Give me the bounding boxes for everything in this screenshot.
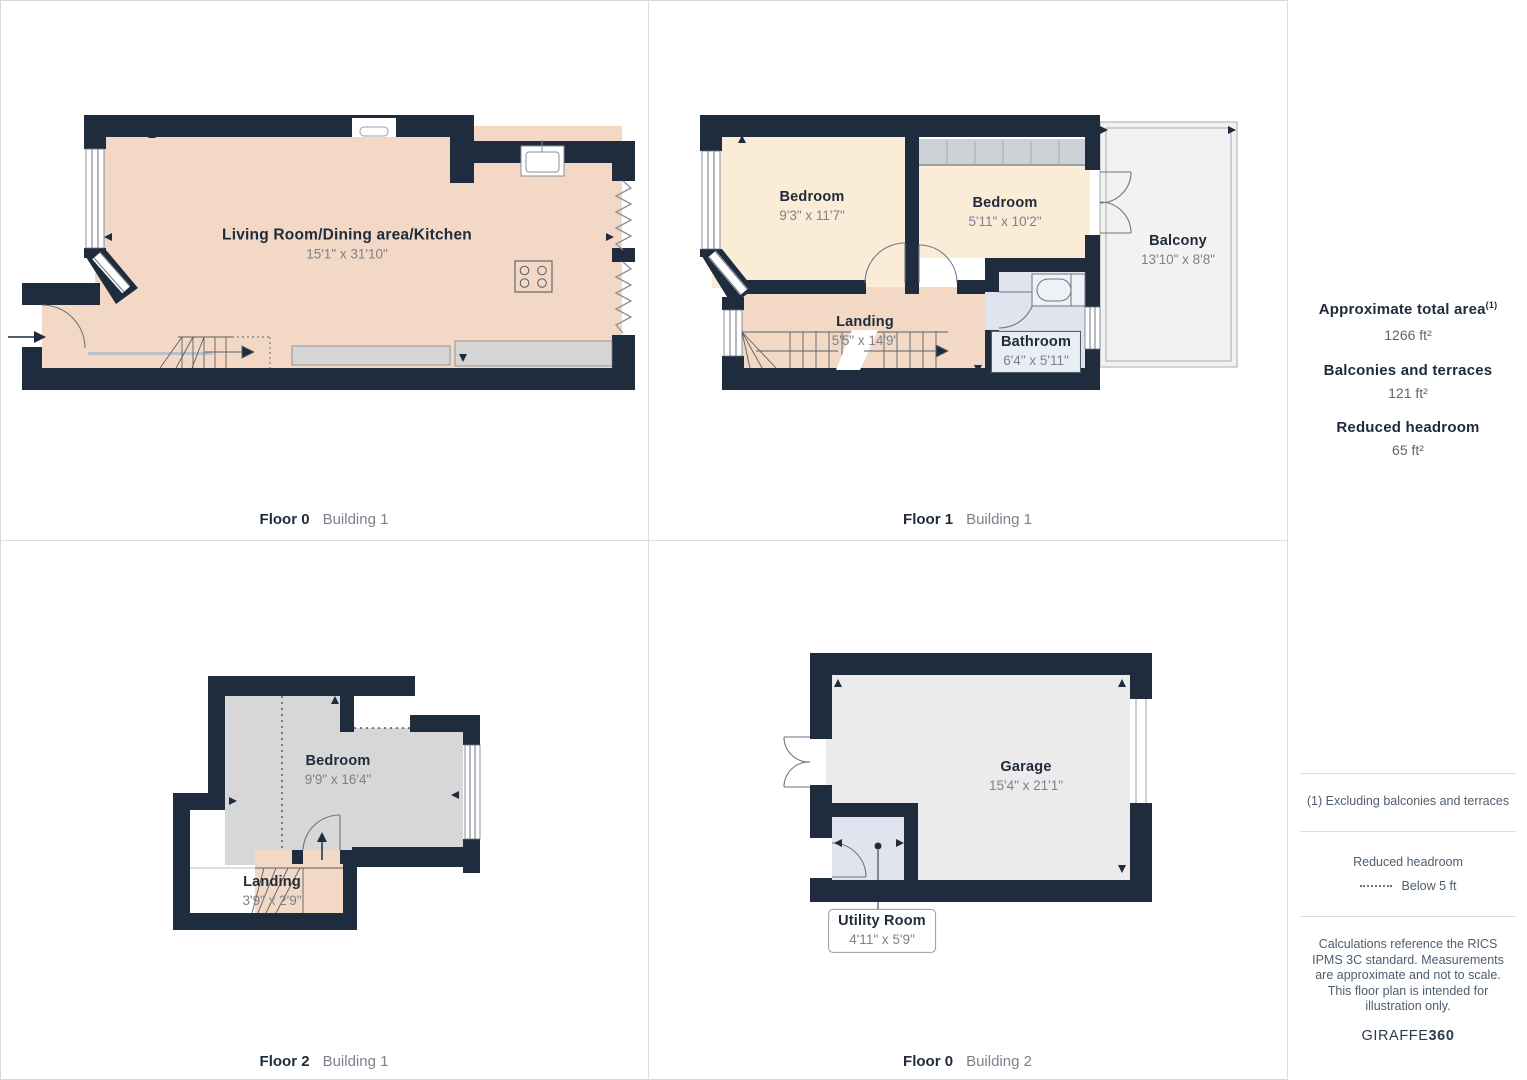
sidebar-divider [1300,916,1516,917]
footnote: (1) Excluding balconies and terraces [1288,794,1527,808]
room-dims: 15'4" x 21'1" [989,778,1063,794]
garage-door [1130,699,1152,803]
caption-floor0-building2: Floor 0 Building 2 [648,1053,1287,1070]
caption-floor: Floor 0 [903,1053,953,1070]
plan-floor1-building1: Bedroom 9'3" x 11'7" Bedroom 5'11" x 10'… [648,0,1287,540]
caption-building: Building 1 [323,1053,389,1070]
room-label-bedroom2: Bedroom 5'11" x 10'2" [968,195,1041,229]
fireplace [352,118,396,137]
brand-suffix: 360 [1429,1028,1455,1044]
room-name: Landing [832,314,899,331]
plan-floor2-building1: Bedroom 9'9" x 16'4" Landing 3'9" x 2'9"… [0,540,648,1080]
double-entry-doors [784,737,810,787]
caption-floor1-building1: Floor 1 Building 1 [648,511,1287,528]
sidebar-divider [1300,831,1516,832]
room-name: Garage [989,759,1063,776]
reduced-headroom-value: 65 ft² [1288,442,1527,458]
room-dims: 5'11" x 10'2" [968,214,1041,230]
legend-title: Reduced headroom [1288,855,1527,869]
room-name: Bedroom [305,753,372,770]
room-label-utility: Utility Room 4'11" x 5'9" [828,909,936,953]
room-label-garage: Garage 15'4" x 21'1" [989,759,1063,793]
bathtub-icon [1032,274,1085,306]
floorplan-drawing-floor1-building1 [648,0,1287,540]
room-label-bedroom1: Bedroom 9'3" x 11'7" [779,189,845,223]
floorplan-drawing-floor2-building1 [0,540,648,1080]
caption-building: Building 1 [966,511,1032,528]
plan-floor0-building2: Garage 15'4" x 21'1" Utility Room 4'11" … [648,540,1287,1080]
balconies-label: Balconies and terraces [1288,362,1527,379]
total-area-footnote-marker: (1) [1486,300,1498,310]
wardrobe [919,139,1085,166]
caption-building: Building 2 [966,1053,1032,1070]
floorplan-drawing-floor0-building1 [0,0,648,540]
caption-floor0-building1: Floor 0 Building 1 [0,511,648,528]
room-label-bathroom: Bathroom 6'4" x 5'11" [991,331,1081,373]
reduced-headroom-label: Reduced headroom [1288,419,1527,436]
plan-floor0-building1: Living Room/Dining area/Kitchen 15'1" x … [0,0,648,540]
total-area-label-text: Approximate total area [1319,301,1486,318]
room-label-landing: Landing 5'5" x 14'9" [832,314,899,348]
room-label-living: Living Room/Dining area/Kitchen 15'1" x … [222,226,472,261]
brand-logo: GIRAFFE360 [1288,1028,1527,1044]
room-dims: 3'9" x 2'9" [242,893,301,909]
summary-sidebar: Approximate total area(1) 1266 ft² Balco… [1287,0,1527,1080]
room-name: Bathroom [1001,334,1071,351]
total-area-label: Approximate total area(1) [1288,300,1527,318]
caption-building: Building 1 [323,511,389,528]
caption-floor2-building1: Floor 2 Building 1 [0,1053,648,1070]
windows [465,745,480,839]
room-name: Landing [242,874,301,891]
total-area-value: 1266 ft² [1288,327,1527,343]
brand-name: GIRAFFE [1361,1028,1428,1044]
room-name: Utility Room [838,913,926,930]
caption-floor: Floor 2 [260,1053,310,1070]
legend-row: Below 5 ft [1288,879,1527,893]
grid-divider-horizontal [0,540,1287,541]
disclaimer: Calculations reference the RICS IPMS 3C … [1312,937,1504,1015]
room-dims: 6'4" x 5'11" [1001,353,1071,369]
room-name: Balcony [1141,233,1215,250]
room-name: Living Room/Dining area/Kitchen [222,226,472,244]
room-name: Bedroom [968,195,1041,212]
floorplan-sheet: Living Room/Dining area/Kitchen 15'1" x … [0,0,1527,1080]
room-label-balcony: Balcony 13'10" x 8'8" [1141,233,1215,267]
legend-item: Below 5 ft [1402,879,1457,893]
room-dims: 9'9" x 16'4" [305,772,372,788]
caption-floor: Floor 0 [260,511,310,528]
room-dims: 5'5" x 14'9" [832,333,899,349]
room-label-bedroom: Bedroom 9'9" x 16'4" [305,753,372,787]
caption-floor: Floor 1 [903,511,953,528]
room-dims: 4'11" x 5'9" [838,932,926,948]
room-dims: 9'3" x 11'7" [779,208,845,224]
room-dims: 15'1" x 31'10" [222,246,472,262]
room-dims: 13'10" x 8'8" [1141,252,1215,268]
floorplan-drawing-floor0-building2 [648,540,1287,1080]
room-name: Bedroom [779,189,845,206]
room-label-landing: Landing 3'9" x 2'9" [242,874,301,908]
balconies-value: 121 ft² [1288,385,1527,401]
room-fills [826,670,1138,885]
dotted-line-icon [1360,885,1392,887]
sidebar-divider [1300,773,1516,774]
